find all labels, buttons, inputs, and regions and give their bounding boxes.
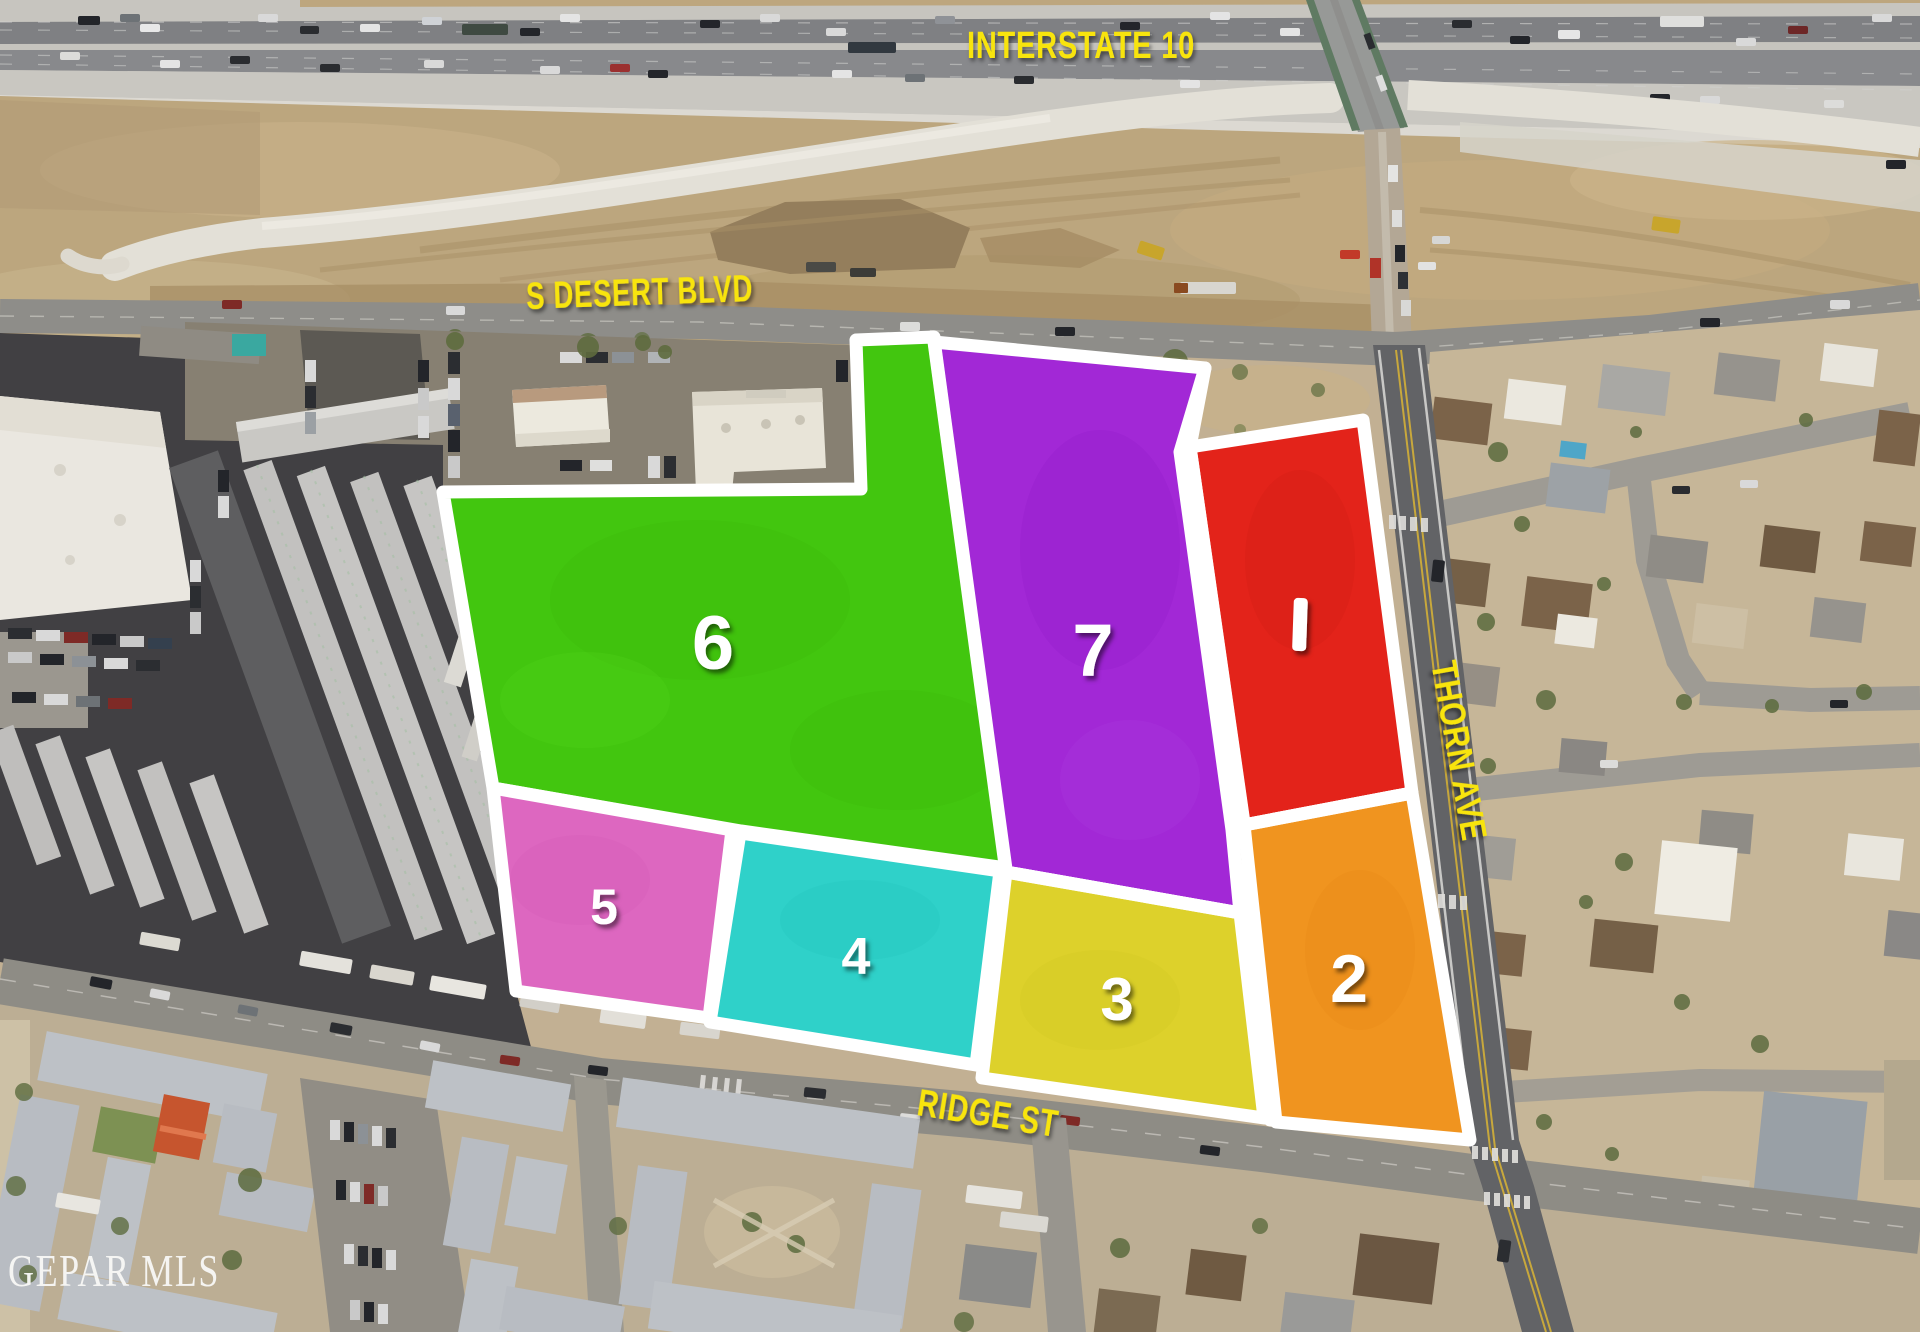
svg-text:7: 7 (1072, 609, 1113, 692)
svg-text:5: 5 (590, 879, 618, 935)
svg-text:3: 3 (1100, 966, 1133, 1033)
svg-text:6: 6 (692, 601, 734, 686)
svg-text:S DESERT BLVD: S DESERT BLVD (525, 268, 753, 318)
svg-text:GEPAR MLS: GEPAR MLS (8, 1245, 220, 1296)
svg-text:INTERSTATE 10: INTERSTATE 10 (967, 25, 1195, 67)
svg-text:2: 2 (1330, 941, 1368, 1017)
svg-text:4: 4 (842, 928, 871, 986)
